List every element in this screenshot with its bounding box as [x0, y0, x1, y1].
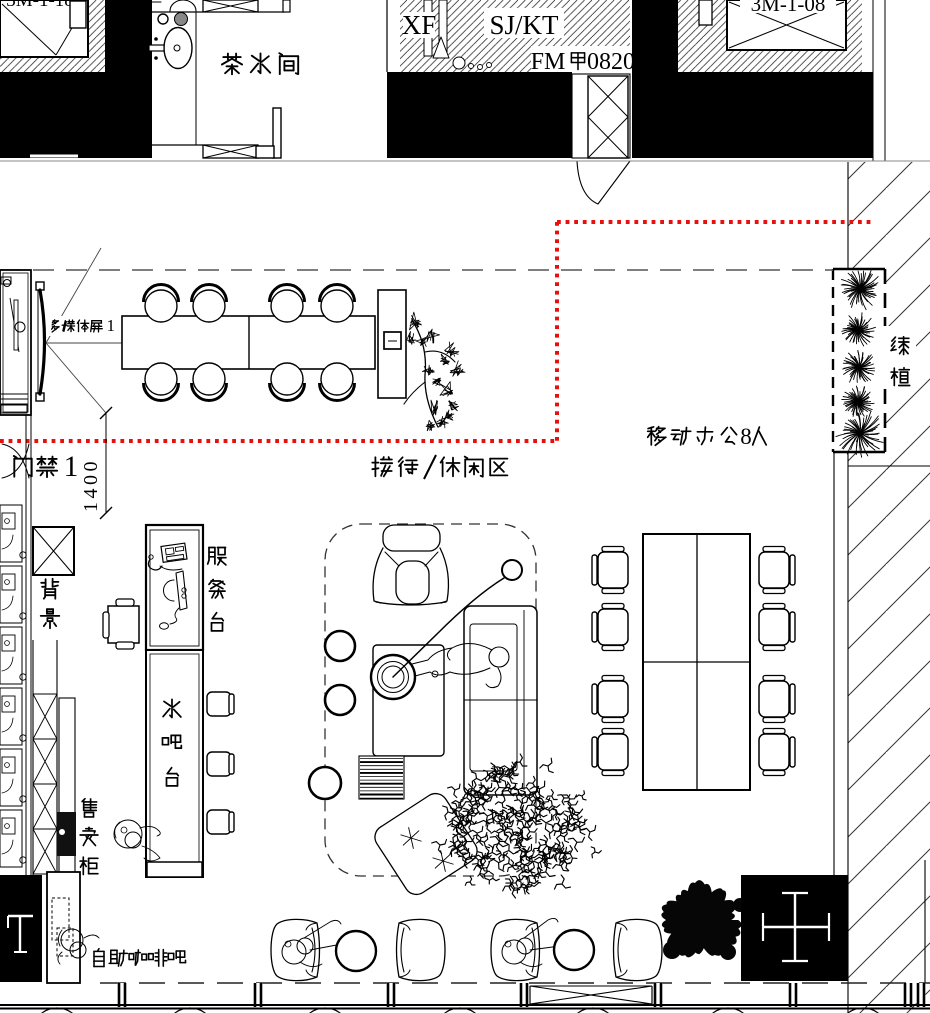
- svg-text:1: 1: [107, 316, 116, 335]
- svg-text:FM: FM: [531, 49, 566, 75]
- svg-text:3M-1-18: 3M-1-18: [6, 0, 74, 11]
- svg-text:3M-1-08: 3M-1-08: [751, 0, 826, 16]
- svg-text:XF: XF: [402, 10, 437, 40]
- svg-text:1400: 1400: [80, 458, 102, 512]
- svg-text:1: 1: [64, 451, 79, 483]
- svg-text:0820: 0820: [587, 49, 635, 75]
- svg-text:SJ/KT: SJ/KT: [489, 10, 559, 40]
- svg-text:8: 8: [740, 424, 752, 449]
